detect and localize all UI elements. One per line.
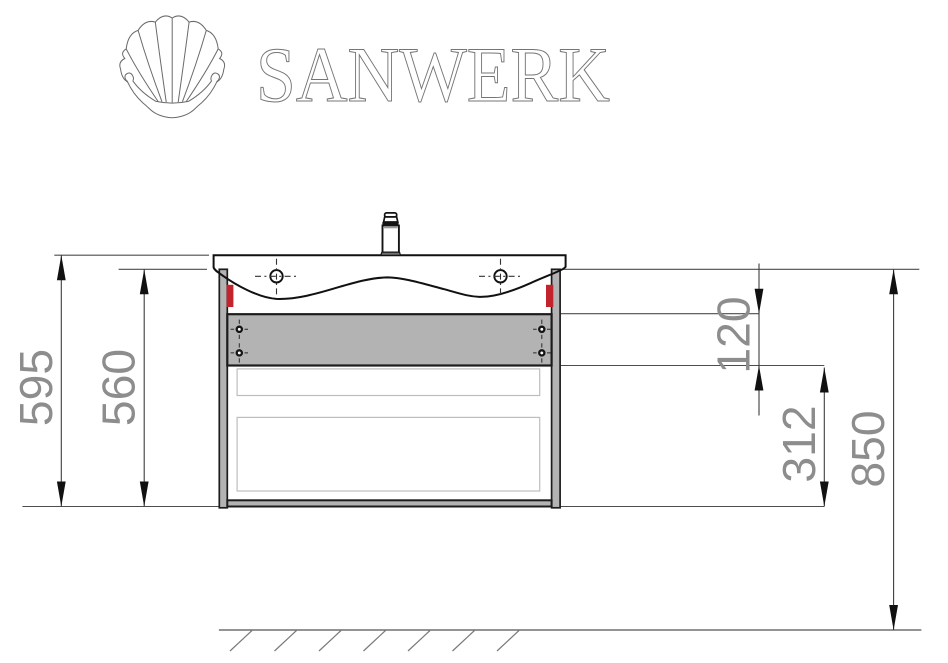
- svg-text:120: 120: [708, 296, 760, 373]
- svg-text:850: 850: [842, 410, 894, 487]
- svg-text:595: 595: [10, 349, 62, 426]
- svg-text:SANWERK: SANWERK: [256, 31, 610, 118]
- svg-text:312: 312: [773, 405, 825, 482]
- svg-text:560: 560: [93, 349, 145, 426]
